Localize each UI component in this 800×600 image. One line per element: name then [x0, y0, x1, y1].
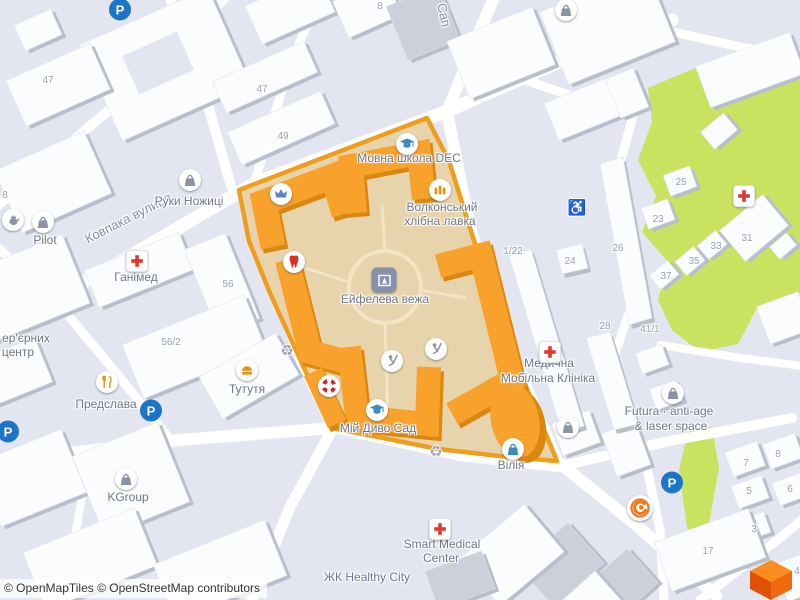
shop-bag-icon[interactable] [557, 416, 579, 438]
clinic-cross-icon[interactable] [429, 518, 451, 540]
shop-bag-icon[interactable] [662, 382, 684, 404]
basemap-canvas [0, 0, 800, 600]
shop-bag-icon[interactable] [179, 169, 201, 191]
svg-text:P: P [147, 403, 156, 418]
attribution-bar: © OpenMapTiles © OpenStreetMap contribut… [0, 579, 267, 598]
shop-bag-icon[interactable] [555, 0, 577, 21]
map-viewport[interactable]: Ковпака вулицяСапPilotРуки НожиціГанімед… [0, 0, 800, 600]
bun-icon[interactable] [236, 359, 258, 381]
attribution-text[interactable]: © OpenMapTiles © OpenStreetMap contribut… [4, 581, 260, 595]
bakery-icon[interactable] [429, 179, 451, 201]
parking-icon[interactable]: P [109, 0, 132, 26]
parking-icon[interactable]: P [0, 420, 20, 448]
school-cap-icon[interactable] [396, 133, 418, 155]
supermarket-bag-icon[interactable] [502, 438, 524, 460]
playground-icon[interactable] [425, 338, 447, 360]
kindergarten-cap-icon[interactable] [366, 399, 388, 421]
svg-text:P: P [4, 424, 13, 439]
clinic-cross-icon[interactable] [539, 341, 561, 363]
playground-icon[interactable] [381, 350, 403, 372]
recycling-icon[interactable]: ♻ [280, 344, 293, 359]
clinic-cross-icon[interactable] [733, 185, 755, 207]
parking-icon[interactable]: P [661, 471, 684, 499]
teapot-icon[interactable] [2, 209, 24, 231]
svg-text:P: P [668, 475, 677, 490]
svg-text:P: P [116, 2, 125, 17]
pharmacy-cross-icon[interactable] [126, 250, 148, 272]
recycling-icon[interactable]: ♻ [429, 445, 442, 460]
restaurant-fork-icon[interactable] [96, 371, 118, 393]
orange-swirl-logo-icon[interactable] [627, 495, 653, 521]
wheelchair-icon[interactable]: ♿ [568, 201, 587, 216]
lifebuoy-icon[interactable] [318, 375, 340, 397]
crown-icon[interactable] [270, 183, 292, 205]
maptiler-cube-logo[interactable] [749, 558, 795, 600]
shop-bag-icon[interactable] [32, 211, 54, 233]
eiffel-tower-badge-icon[interactable] [372, 268, 397, 293]
shop-bag-icon[interactable] [115, 468, 137, 490]
parking-icon[interactable]: P [140, 399, 163, 427]
dentist-tooth-icon[interactable] [283, 251, 305, 273]
